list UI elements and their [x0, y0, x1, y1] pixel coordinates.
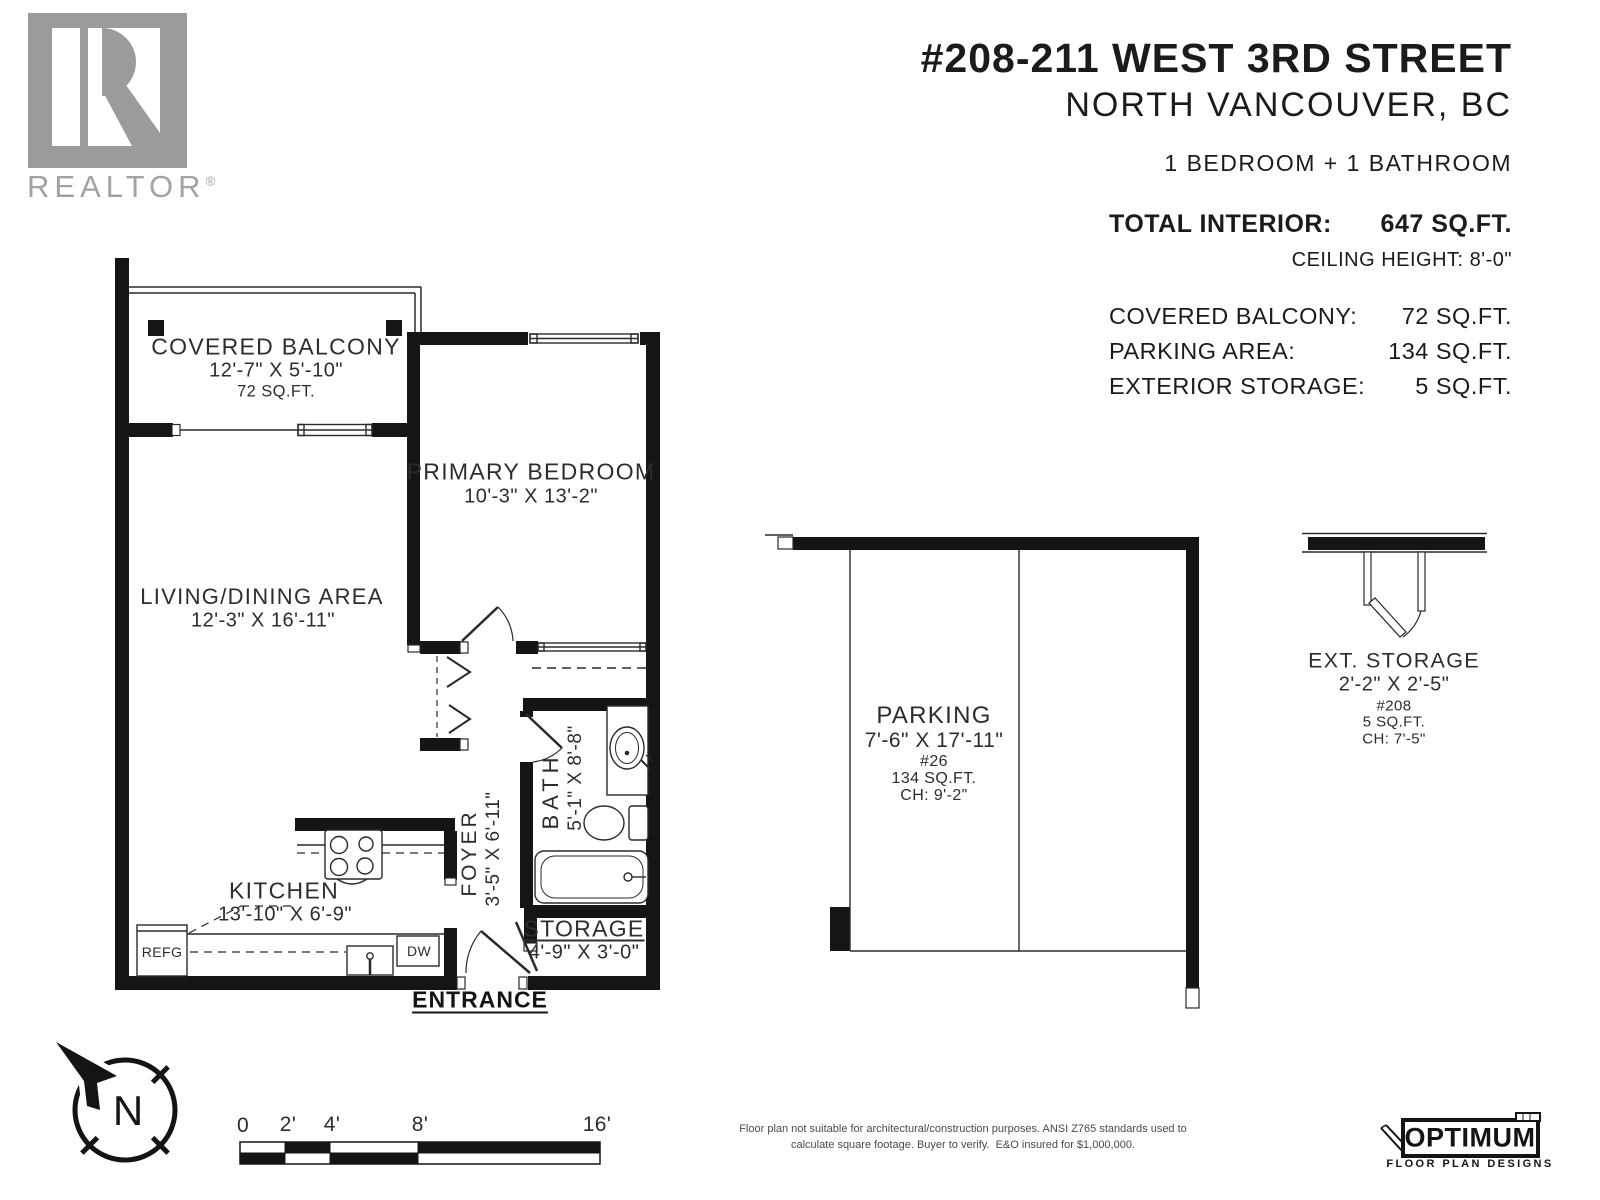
room-label-foyer: FOYER — [458, 809, 482, 896]
dishwasher-label: DW — [407, 943, 431, 959]
room-label-bedroom: PRIMARY BEDROOM — [407, 459, 656, 486]
parking-area-label: 134 SQ.FT. — [892, 770, 977, 788]
stove — [325, 830, 382, 884]
kitchen-sink — [347, 946, 393, 975]
stat-row-parking: PARKING AREA: 134 SQ.FT. — [1109, 338, 1512, 365]
parking-structure — [765, 535, 1199, 1008]
stat-label: COVERED BALCONY: — [1109, 303, 1357, 330]
entrance-label: ENTRANCE — [412, 987, 548, 1014]
page-title: #208-211 WEST 3RD STREET — [872, 36, 1512, 81]
toilet — [584, 806, 648, 840]
total-interior-label: TOTAL INTERIOR: — [1109, 210, 1332, 239]
bedroom-window — [528, 331, 640, 346]
scale-tick-8ft: 8' — [412, 1113, 429, 1137]
total-interior-value: 647 SQ.FT. — [1381, 210, 1512, 239]
stat-value: 5 SQ.FT. — [1415, 373, 1512, 400]
bedroom-door-swing — [462, 607, 513, 641]
bathtub — [535, 851, 648, 903]
disclaimer-line-1: Floor plan not suitable for architectura… — [739, 1121, 1187, 1137]
floor-plan-sheet: #208-211 WEST 3RD STREET NORTH VANCOUVER… — [0, 0, 1600, 1200]
stat-row-ext-storage: EXTERIOR STORAGE: 5 SQ.FT. — [1109, 373, 1512, 400]
ext-storage-unit-number: #208 — [1377, 698, 1412, 715]
scale-tick-4ft: 4' — [324, 1113, 341, 1137]
realtor-logo-icon — [28, 13, 187, 168]
header: #208-211 WEST 3RD STREET NORTH VANCOUVER… — [872, 36, 1512, 408]
scale-tick-2ft: 2' — [280, 1113, 297, 1137]
optimum-logo-subtitle: FLOOR PLAN DESIGNS — [1386, 1158, 1553, 1170]
room-dims-bedroom: 10'-3" X 13'-2" — [464, 486, 598, 509]
room-dims-storage: 4'-9" X 3'-0" — [529, 942, 640, 965]
stat-value: 134 SQ.FT. — [1388, 338, 1512, 365]
room-dims-balcony: 12'-7" X 5'-10" — [209, 360, 343, 383]
room-label-storage: STORAGE — [523, 916, 644, 943]
parking-dims: 7'-6" X 17'-11" — [865, 729, 1004, 753]
room-label-bath: BATH — [538, 752, 564, 829]
room-dims-kitchen: 13'-10" X 6'-9" — [218, 904, 352, 927]
area-stats: COVERED BALCONY: 72 SQ.FT. PARKING AREA:… — [872, 303, 1512, 400]
balcony-railing — [129, 287, 421, 332]
ext-storage-ceiling-height: CH: 7'-5" — [1362, 731, 1425, 748]
ext-storage-structure — [1302, 534, 1487, 638]
refrigerator-label: REFG — [142, 944, 183, 960]
balcony-sliding-door — [180, 425, 372, 436]
ceiling-height: CEILING HEIGHT: 8'-0" — [872, 249, 1512, 272]
total-interior-row: TOTAL INTERIOR: 647 SQ.FT. — [1109, 210, 1512, 239]
registered-mark: ® — [206, 174, 216, 189]
compass-north-letter: N — [113, 1087, 143, 1135]
stat-row-balcony: COVERED BALCONY: 72 SQ.FT. — [1109, 303, 1512, 330]
stat-label: EXTERIOR STORAGE: — [1109, 373, 1365, 400]
scale-tick-0: 0 — [237, 1114, 249, 1138]
disclaimer-line-2: calculate square footage. Buyer to verif… — [739, 1137, 1187, 1153]
bath-vanity-sink — [607, 706, 653, 795]
room-dims-bath: 5'-1" X 8'-8" — [565, 725, 587, 830]
scale-tick-16ft: 16' — [583, 1113, 612, 1137]
room-label-living: LIVING/DINING AREA — [140, 584, 383, 610]
optimum-logo-title: OPTIMUM — [1405, 1123, 1536, 1154]
foyer-closet-bifold — [437, 656, 470, 737]
stat-label: PARKING AREA: — [1109, 338, 1295, 365]
bedroom-closet — [532, 643, 646, 668]
room-area-balcony: 72 SQ.FT. — [237, 383, 315, 402]
ext-storage-label: EXT. STORAGE — [1308, 649, 1480, 674]
room-label-balcony: COVERED BALCONY — [151, 334, 401, 361]
ext-storage-area: 5 SQ.FT. — [1363, 714, 1425, 731]
room-label-kitchen: KITCHEN — [229, 878, 339, 905]
stat-value: 72 SQ.FT. — [1402, 303, 1512, 330]
realtor-logo-text: REALTOR® — [27, 169, 215, 205]
scale-bar-graphic — [240, 1142, 600, 1164]
parking-label: PARKING — [876, 702, 991, 730]
parking-ceiling-height: CH: 9'-2" — [900, 787, 967, 805]
entry-door-swing — [466, 931, 530, 973]
bed-bath-summary: 1 BEDROOM + 1 BATHROOM — [872, 150, 1512, 177]
room-dims-living: 12'-3" X 16'-11" — [191, 610, 335, 633]
page-subtitle: NORTH VANCOUVER, BC — [872, 86, 1512, 125]
parking-stall-number: #26 — [920, 753, 948, 771]
disclaimer: Floor plan not suitable for architectura… — [739, 1121, 1187, 1153]
ext-storage-dims: 2'-2" X 2'-5" — [1339, 674, 1450, 697]
room-dims-foyer: 3'-5" X 6'-11" — [483, 791, 505, 906]
realtor-word: REALTOR — [27, 169, 206, 204]
